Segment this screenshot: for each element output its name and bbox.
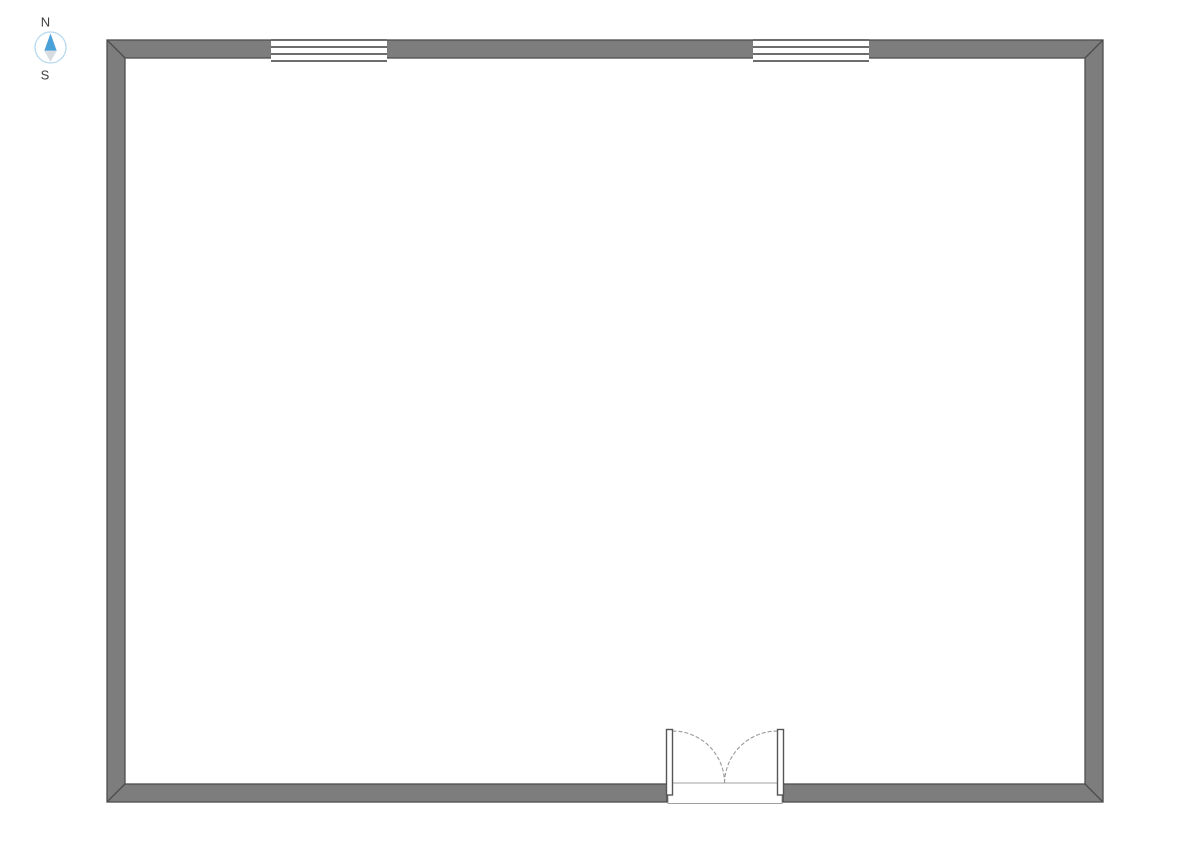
compass-south-label: S xyxy=(41,68,50,83)
door-leaf-left xyxy=(667,730,673,796)
door-leaf-right xyxy=(778,730,784,796)
room-walls[interactable] xyxy=(107,40,1103,802)
compass[interactable]: N S xyxy=(35,15,66,83)
door-swing-arc-right xyxy=(725,731,778,783)
floor-plan-drawing: N S xyxy=(0,0,1191,842)
window-symbol-left[interactable] xyxy=(271,38,387,63)
floor-plan-canvas: N S xyxy=(0,0,1191,842)
wall-inner-edge xyxy=(125,58,1085,784)
door-swing-arc-left xyxy=(673,731,725,783)
door-swing-arcs xyxy=(673,731,778,783)
window-frame xyxy=(271,38,387,63)
wall-outer-edge xyxy=(107,40,1103,802)
door-sill xyxy=(668,783,782,804)
double-door-symbol[interactable] xyxy=(667,730,784,804)
window-frame xyxy=(753,38,869,63)
window-symbol-right[interactable] xyxy=(753,38,869,63)
wall-band xyxy=(107,40,1103,802)
compass-north-label: N xyxy=(41,15,50,30)
wall-edges xyxy=(107,40,1103,802)
